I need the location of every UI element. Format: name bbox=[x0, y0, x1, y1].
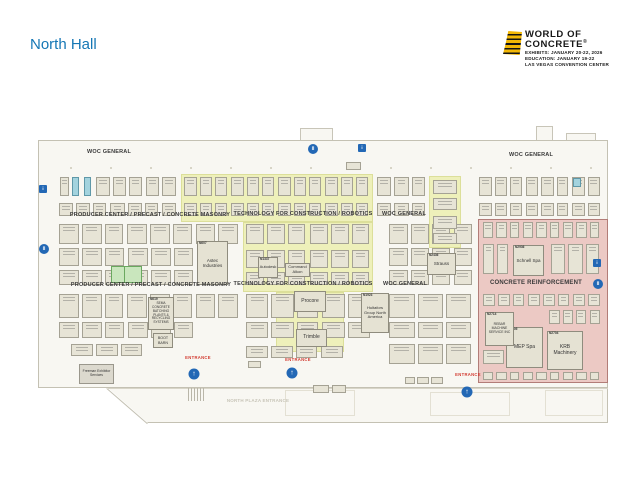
booth-generic bbox=[389, 248, 408, 266]
booth-generic bbox=[418, 344, 444, 364]
booth-generic bbox=[417, 377, 429, 384]
booth-generic bbox=[557, 177, 569, 196]
booth-teal bbox=[573, 178, 581, 187]
map-room bbox=[536, 126, 553, 141]
booth-number: N1923 bbox=[363, 294, 372, 298]
booth-number: N2436 bbox=[429, 254, 438, 258]
booth-generic bbox=[536, 372, 546, 380]
booth-generic bbox=[576, 372, 586, 380]
column-dot bbox=[150, 167, 152, 169]
booth-generic bbox=[446, 344, 471, 364]
logo-line2: CONCRETE® bbox=[525, 40, 609, 50]
booth-rebar-machine-service-inc[interactable]: REBAR MACHINE SERVICE INCN2714 bbox=[485, 312, 514, 346]
booth-generic bbox=[146, 177, 160, 196]
booth-generic bbox=[162, 177, 176, 196]
booth-generic bbox=[479, 177, 492, 196]
booth-label: Freeman Exhibitor Services bbox=[81, 370, 112, 378]
booth-generic bbox=[151, 248, 171, 266]
booth-generic bbox=[543, 294, 555, 306]
booth-generic bbox=[262, 177, 274, 196]
booth-generic bbox=[278, 177, 291, 196]
booth-number: N2714 bbox=[487, 313, 496, 317]
booth-generic bbox=[82, 248, 102, 266]
booth-sema-concrete-batching-plants-re[interactable]: SEMA CONCRETE BATCHING PLANTS & RECYCLIN… bbox=[148, 297, 174, 330]
booth-generic bbox=[332, 385, 346, 393]
restroom-icon: i bbox=[593, 259, 601, 267]
hall-apron-wall bbox=[108, 388, 608, 389]
column-dot bbox=[590, 167, 592, 169]
booth-generic bbox=[246, 224, 264, 244]
booth-generic bbox=[352, 250, 369, 268]
booth-generic bbox=[96, 344, 118, 356]
booth-generic bbox=[267, 224, 285, 244]
booth-label: Procore bbox=[301, 299, 319, 305]
booth-generic bbox=[590, 372, 599, 380]
entrance-arrow-icon: ↑ bbox=[189, 369, 200, 380]
entrance-label: ENTRANCE bbox=[285, 357, 311, 362]
booth-generic bbox=[271, 322, 293, 338]
booth-generic bbox=[483, 222, 493, 238]
booth-number: N619 bbox=[150, 298, 158, 302]
column-dot bbox=[310, 167, 312, 169]
restroom-icon: i bbox=[39, 185, 47, 193]
entrance-label: ENTRANCE bbox=[185, 355, 211, 360]
section-label-north-plaza-entrance: NORTH PLAZA ENTRANCE bbox=[227, 398, 289, 403]
booth-generic bbox=[510, 222, 519, 238]
booth-generic bbox=[479, 203, 492, 216]
booth-generic bbox=[454, 248, 473, 266]
booth-generic bbox=[215, 177, 227, 196]
booth-generic bbox=[310, 250, 328, 268]
lobby-outline bbox=[285, 390, 355, 416]
booth-generic bbox=[352, 224, 369, 244]
booth-generic bbox=[105, 322, 124, 338]
booth-generic bbox=[173, 224, 192, 244]
section-label-woc-general: WOC GENERAL bbox=[87, 149, 131, 155]
booth-generic bbox=[309, 177, 321, 196]
booth-generic bbox=[588, 294, 600, 306]
column-dot bbox=[270, 167, 272, 169]
booth-generic bbox=[510, 177, 522, 196]
booth-generic bbox=[576, 222, 586, 238]
booth-generic bbox=[59, 294, 79, 318]
booth-generic bbox=[411, 224, 430, 244]
booth-hultafors-group-north-america[interactable]: Hultafors Group North AmericaN1923 bbox=[361, 293, 389, 333]
booth-generic bbox=[321, 346, 343, 358]
booth-generic bbox=[105, 224, 124, 244]
booth-generic bbox=[105, 248, 124, 266]
floor-plan-page: North Hall WORLD OF CONCRETE® EXHIBITS: … bbox=[0, 0, 640, 494]
booth-generic bbox=[550, 372, 559, 380]
restroom-icon: ii bbox=[593, 279, 603, 289]
booth-generic bbox=[196, 294, 216, 318]
stairs-hatch bbox=[188, 388, 204, 401]
booth-label: Schnell Spa bbox=[516, 258, 540, 263]
booth-label: Autodesk bbox=[260, 265, 277, 270]
booth-generic bbox=[496, 222, 506, 238]
booth-label: Astec Industries bbox=[199, 258, 226, 268]
restroom-icon: ii bbox=[39, 244, 49, 254]
booth-generic bbox=[246, 294, 268, 318]
booth-generic bbox=[127, 224, 147, 244]
booth-generic bbox=[483, 350, 504, 364]
column-dot bbox=[510, 167, 512, 169]
booth-generic bbox=[231, 177, 244, 196]
logo-info-line: LAS VEGAS CONVENTION CENTER bbox=[525, 62, 609, 68]
column-dot bbox=[430, 167, 432, 169]
booth-generic bbox=[331, 250, 349, 268]
booth-generic bbox=[121, 344, 142, 356]
column-dot bbox=[70, 167, 72, 169]
booth-procore[interactable]: Procore bbox=[294, 291, 326, 312]
booth-generic bbox=[588, 203, 601, 216]
booth-generic bbox=[510, 203, 522, 216]
booth-label: REBAR MACHINE SERVICE INC bbox=[487, 323, 512, 335]
booth-generic bbox=[526, 177, 539, 196]
booth-generic bbox=[341, 177, 354, 196]
booth-number: N2936 bbox=[515, 246, 524, 250]
booth-generic bbox=[82, 322, 102, 338]
booth-label: Strauss bbox=[434, 261, 449, 266]
booth-generic bbox=[331, 224, 349, 244]
booth-generic bbox=[551, 244, 565, 274]
booth-generic bbox=[346, 162, 361, 170]
booth-generic bbox=[200, 177, 213, 196]
booth-number: N1337 bbox=[260, 258, 269, 262]
booth-generic bbox=[174, 322, 193, 338]
booth-generic bbox=[246, 346, 268, 358]
booth-generic bbox=[498, 294, 510, 306]
section-label-concrete-reinforcement: CONCRETE REINFORCEMENT bbox=[490, 280, 582, 286]
booth-generic bbox=[528, 294, 540, 306]
booth-autodesk[interactable]: AutodeskN1337 bbox=[258, 257, 278, 278]
section-label-producer-center-precast-concrete: PRODUCER CENTER / PRECAST / CONCRETE MAS… bbox=[71, 282, 231, 288]
booth-generic bbox=[128, 248, 148, 266]
booth-generic bbox=[389, 322, 415, 338]
booth-teal bbox=[84, 177, 91, 196]
booth-generic bbox=[526, 203, 539, 216]
booth-generic bbox=[549, 310, 560, 324]
booth-generic bbox=[431, 377, 443, 384]
booth-number: N607 bbox=[199, 242, 207, 246]
entrance-label: ENTRANCE bbox=[455, 372, 481, 377]
booth-green bbox=[111, 266, 142, 283]
booth-generic bbox=[288, 224, 305, 244]
booth-generic bbox=[71, 344, 93, 356]
booth-generic bbox=[389, 224, 408, 244]
booth-label: Hultafors Group North America bbox=[363, 306, 387, 320]
booth-generic bbox=[513, 294, 524, 306]
booth-generic bbox=[356, 177, 368, 196]
world-of-concrete-logo: WORLD OF CONCRETE® EXHIBITS: JANUARY 20-… bbox=[503, 29, 623, 75]
booth-generic bbox=[433, 233, 457, 244]
booth-generic bbox=[60, 177, 69, 196]
booth-generic bbox=[550, 222, 559, 238]
booth-generic bbox=[590, 222, 599, 238]
booth-generic bbox=[568, 244, 582, 274]
booth-generic bbox=[523, 222, 533, 238]
booth-generic bbox=[483, 294, 495, 306]
booth-generic bbox=[588, 177, 601, 196]
booth-generic bbox=[418, 322, 444, 338]
booth-freeman-exhibitor-services[interactable]: Freeman Exhibitor Services bbox=[79, 364, 114, 384]
booth-label: SEMA CONCRETE BATCHING PLANTS & RECYCLIN… bbox=[150, 302, 172, 324]
booth-generic bbox=[483, 244, 494, 274]
booth-generic bbox=[446, 294, 471, 318]
booth-label: MEP Spa bbox=[514, 345, 535, 351]
page-title: North Hall bbox=[30, 36, 97, 53]
booth-generic bbox=[563, 372, 573, 380]
booth-generic bbox=[433, 198, 457, 210]
entrance-arrow-icon: ↑ bbox=[462, 387, 473, 398]
booth-label: Command Alkon bbox=[287, 265, 308, 274]
booth-generic bbox=[541, 177, 554, 196]
booth-generic bbox=[377, 177, 391, 196]
booth-generic bbox=[248, 361, 261, 368]
booth-generic bbox=[218, 294, 238, 318]
section-label-technology-for-construction-robo: TECHNOLOGY FOR CONSTRUCTION / ROBOTICS bbox=[234, 281, 373, 287]
booth-generic bbox=[271, 294, 293, 318]
column-dot bbox=[390, 167, 392, 169]
booth-generic bbox=[59, 248, 79, 266]
section-label-producer-center-precast-concrete: PRODUCER CENTER / PRECAST / CONCRETE MAS… bbox=[70, 212, 230, 218]
booth-generic bbox=[510, 372, 519, 380]
booth-generic bbox=[128, 322, 148, 338]
booth-label: BOOT BARN bbox=[155, 336, 171, 344]
booth-generic bbox=[483, 372, 493, 380]
column-dot bbox=[470, 167, 472, 169]
booth-generic bbox=[105, 294, 124, 318]
booth-trimble[interactable]: Trimble bbox=[296, 329, 327, 347]
booth-generic bbox=[454, 270, 473, 285]
booth-krb-machinery[interactable]: KRB MachineryN2704 bbox=[547, 331, 583, 370]
booth-generic bbox=[173, 294, 192, 318]
booth-generic bbox=[541, 203, 554, 216]
logo-info-lines: EXHIBITS: JANUARY 20-22, 2026EDUCATION: … bbox=[525, 50, 609, 68]
booth-generic bbox=[82, 224, 102, 244]
booth-generic bbox=[59, 224, 79, 244]
booth-generic bbox=[563, 310, 574, 324]
column-dot bbox=[550, 167, 552, 169]
booth-generic bbox=[389, 344, 415, 364]
booth-generic bbox=[150, 224, 170, 244]
section-label-woc-general: WOC GENERAL bbox=[383, 281, 427, 287]
booth-generic bbox=[394, 177, 408, 196]
booth-generic bbox=[389, 294, 415, 318]
booth-generic bbox=[573, 294, 585, 306]
booth-generic bbox=[523, 372, 533, 380]
booth-generic bbox=[418, 294, 444, 318]
booth-generic bbox=[313, 385, 329, 393]
column-dot bbox=[230, 167, 232, 169]
booth-generic bbox=[294, 177, 307, 196]
booth-generic bbox=[433, 216, 457, 229]
booth-generic bbox=[246, 322, 268, 338]
booth-generic bbox=[129, 177, 142, 196]
booth-generic bbox=[325, 177, 338, 196]
logo-text: WORLD OF CONCRETE® EXHIBITS: JANUARY 20-… bbox=[525, 30, 609, 68]
booth-generic bbox=[184, 177, 197, 196]
booth-generic bbox=[82, 294, 102, 318]
booth-generic bbox=[247, 177, 260, 196]
booth-generic bbox=[127, 294, 147, 318]
booth-number: N2704 bbox=[549, 332, 558, 336]
section-label-woc-general: WOC GENERAL bbox=[509, 152, 553, 158]
booth-generic bbox=[563, 222, 573, 238]
booth-label: KRB Machinery bbox=[549, 345, 581, 357]
booth-generic bbox=[174, 248, 193, 266]
booth-generic bbox=[590, 310, 601, 324]
booth-generic bbox=[496, 372, 506, 380]
booth-generic bbox=[96, 177, 110, 196]
restroom-icon: i bbox=[358, 144, 366, 152]
booth-generic bbox=[497, 244, 508, 274]
booth-generic bbox=[405, 377, 415, 384]
section-label-woc-general: WOC GENERAL bbox=[382, 211, 426, 217]
booth-generic bbox=[59, 322, 79, 338]
booth-generic bbox=[113, 177, 127, 196]
booth-strauss[interactable]: StraussN2436 bbox=[427, 253, 456, 275]
booth-generic bbox=[572, 203, 585, 216]
booth-generic bbox=[536, 222, 546, 238]
booth-generic bbox=[576, 310, 586, 324]
booth-generic bbox=[412, 177, 425, 196]
booth-generic bbox=[495, 177, 508, 196]
booth-generic bbox=[433, 180, 457, 194]
booth-generic bbox=[557, 203, 569, 216]
booth-generic bbox=[446, 322, 471, 338]
booth-generic bbox=[558, 294, 569, 306]
restroom-icon: ii bbox=[308, 144, 318, 154]
booth-generic bbox=[495, 203, 508, 216]
booth-label: Trimble bbox=[303, 335, 319, 341]
booth-boot-barn[interactable]: BOOT BARN bbox=[153, 333, 173, 348]
booth-generic bbox=[310, 224, 328, 244]
logo-stripes-icon bbox=[503, 31, 522, 55]
entrance-arrow-icon: ↑ bbox=[287, 368, 298, 379]
column-dot bbox=[190, 167, 192, 169]
booth-teal bbox=[72, 177, 79, 196]
booth-schnell-spa[interactable]: Schnell SpaN2936 bbox=[513, 245, 544, 276]
column-dot bbox=[110, 167, 112, 169]
booth-command-alkon[interactable]: Command Alkon bbox=[285, 263, 310, 277]
booth-astec-industries[interactable]: Astec IndustriesN607 bbox=[197, 241, 228, 285]
lobby-outline bbox=[545, 390, 603, 416]
section-label-technology-for-construction-robo: TECHNOLOGY FOR CONSTRUCTION / ROBOTICS bbox=[234, 211, 373, 217]
